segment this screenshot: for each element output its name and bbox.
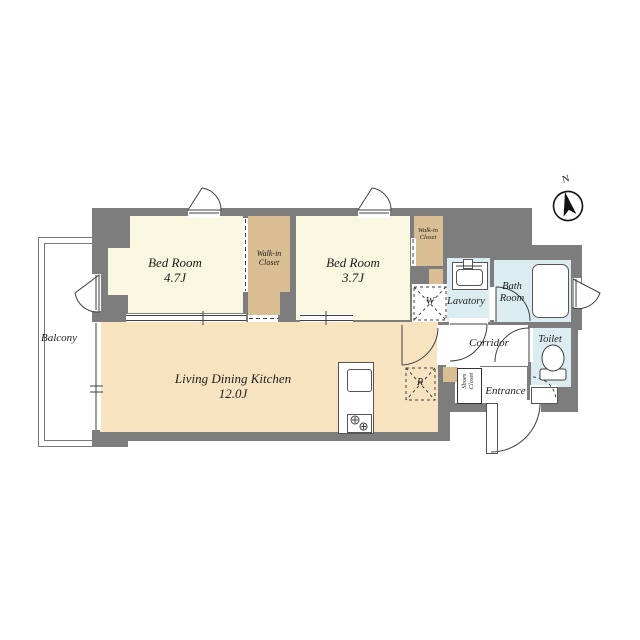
bedroom1-name: Bed Room [115, 256, 235, 271]
window-gap-top2 [358, 208, 390, 218]
corridor-label: Corridor [449, 337, 529, 350]
bedroom2-label: Bed Room 3.7J [293, 256, 413, 286]
balcony-label: Balcony [28, 332, 90, 345]
ldk-name: Living Dining Kitchen [133, 372, 333, 387]
kitchen-sink-icon [347, 369, 372, 392]
bedroom2-size: 3.7J [293, 271, 413, 286]
bedroom1-size: 4.7J [115, 271, 235, 286]
sliding-door-bedroom2 [300, 314, 353, 322]
door-gap-ldk [437, 325, 447, 365]
washing-machine-label: W [422, 296, 438, 308]
storage-box-lower [443, 367, 458, 382]
window-gap-bedroom1 [92, 274, 101, 311]
toilet-label: Toilet [525, 334, 575, 346]
door-gap-lavatory [449, 318, 488, 327]
entrance-door-leaf [486, 403, 498, 454]
sliding-door-bedroom1 [126, 314, 246, 322]
entrance-step-line [480, 366, 528, 367]
ldk-size: 12.0J [133, 387, 333, 402]
bathroom-label: Bath Room [490, 281, 534, 305]
lavatory-label: Lavatory [436, 296, 496, 308]
stove-icon [347, 414, 372, 433]
wic1-label: Walk-in Closet [246, 250, 292, 268]
wic1-opening-bottom [248, 315, 278, 322]
ldk-label: Living Dining Kitchen 12.0J [133, 372, 333, 402]
floor-plan: Balcony Bed Room 4.7J Walk-in Closet Bed… [0, 0, 640, 640]
bedroom1-label: Bed Room 4.7J [115, 256, 235, 286]
shoes-closet-label: Shoes Closet [461, 366, 475, 396]
window-gap-top1 [188, 208, 220, 218]
lavatory-basin-icon [456, 269, 483, 286]
refrigerator-label: R [412, 377, 428, 389]
bedroom1-wall-notch-bl [108, 295, 128, 313]
wic2-label: Walk-in Closet [411, 227, 445, 241]
compass-icon [551, 189, 585, 223]
window-gap-balcony [92, 322, 101, 430]
wic1-wall-notch [280, 292, 290, 315]
entrance-label: Entrance [468, 385, 543, 398]
window-gap-bath [572, 278, 581, 307]
bedroom1-wall-notch-tl [108, 216, 130, 248]
bedroom2-name: Bed Room [293, 256, 413, 271]
lavatory-tap-icon [463, 259, 473, 269]
compass-north-label: N [555, 172, 577, 188]
wall-bottom-step [92, 430, 128, 447]
bathtub-icon [532, 264, 569, 318]
